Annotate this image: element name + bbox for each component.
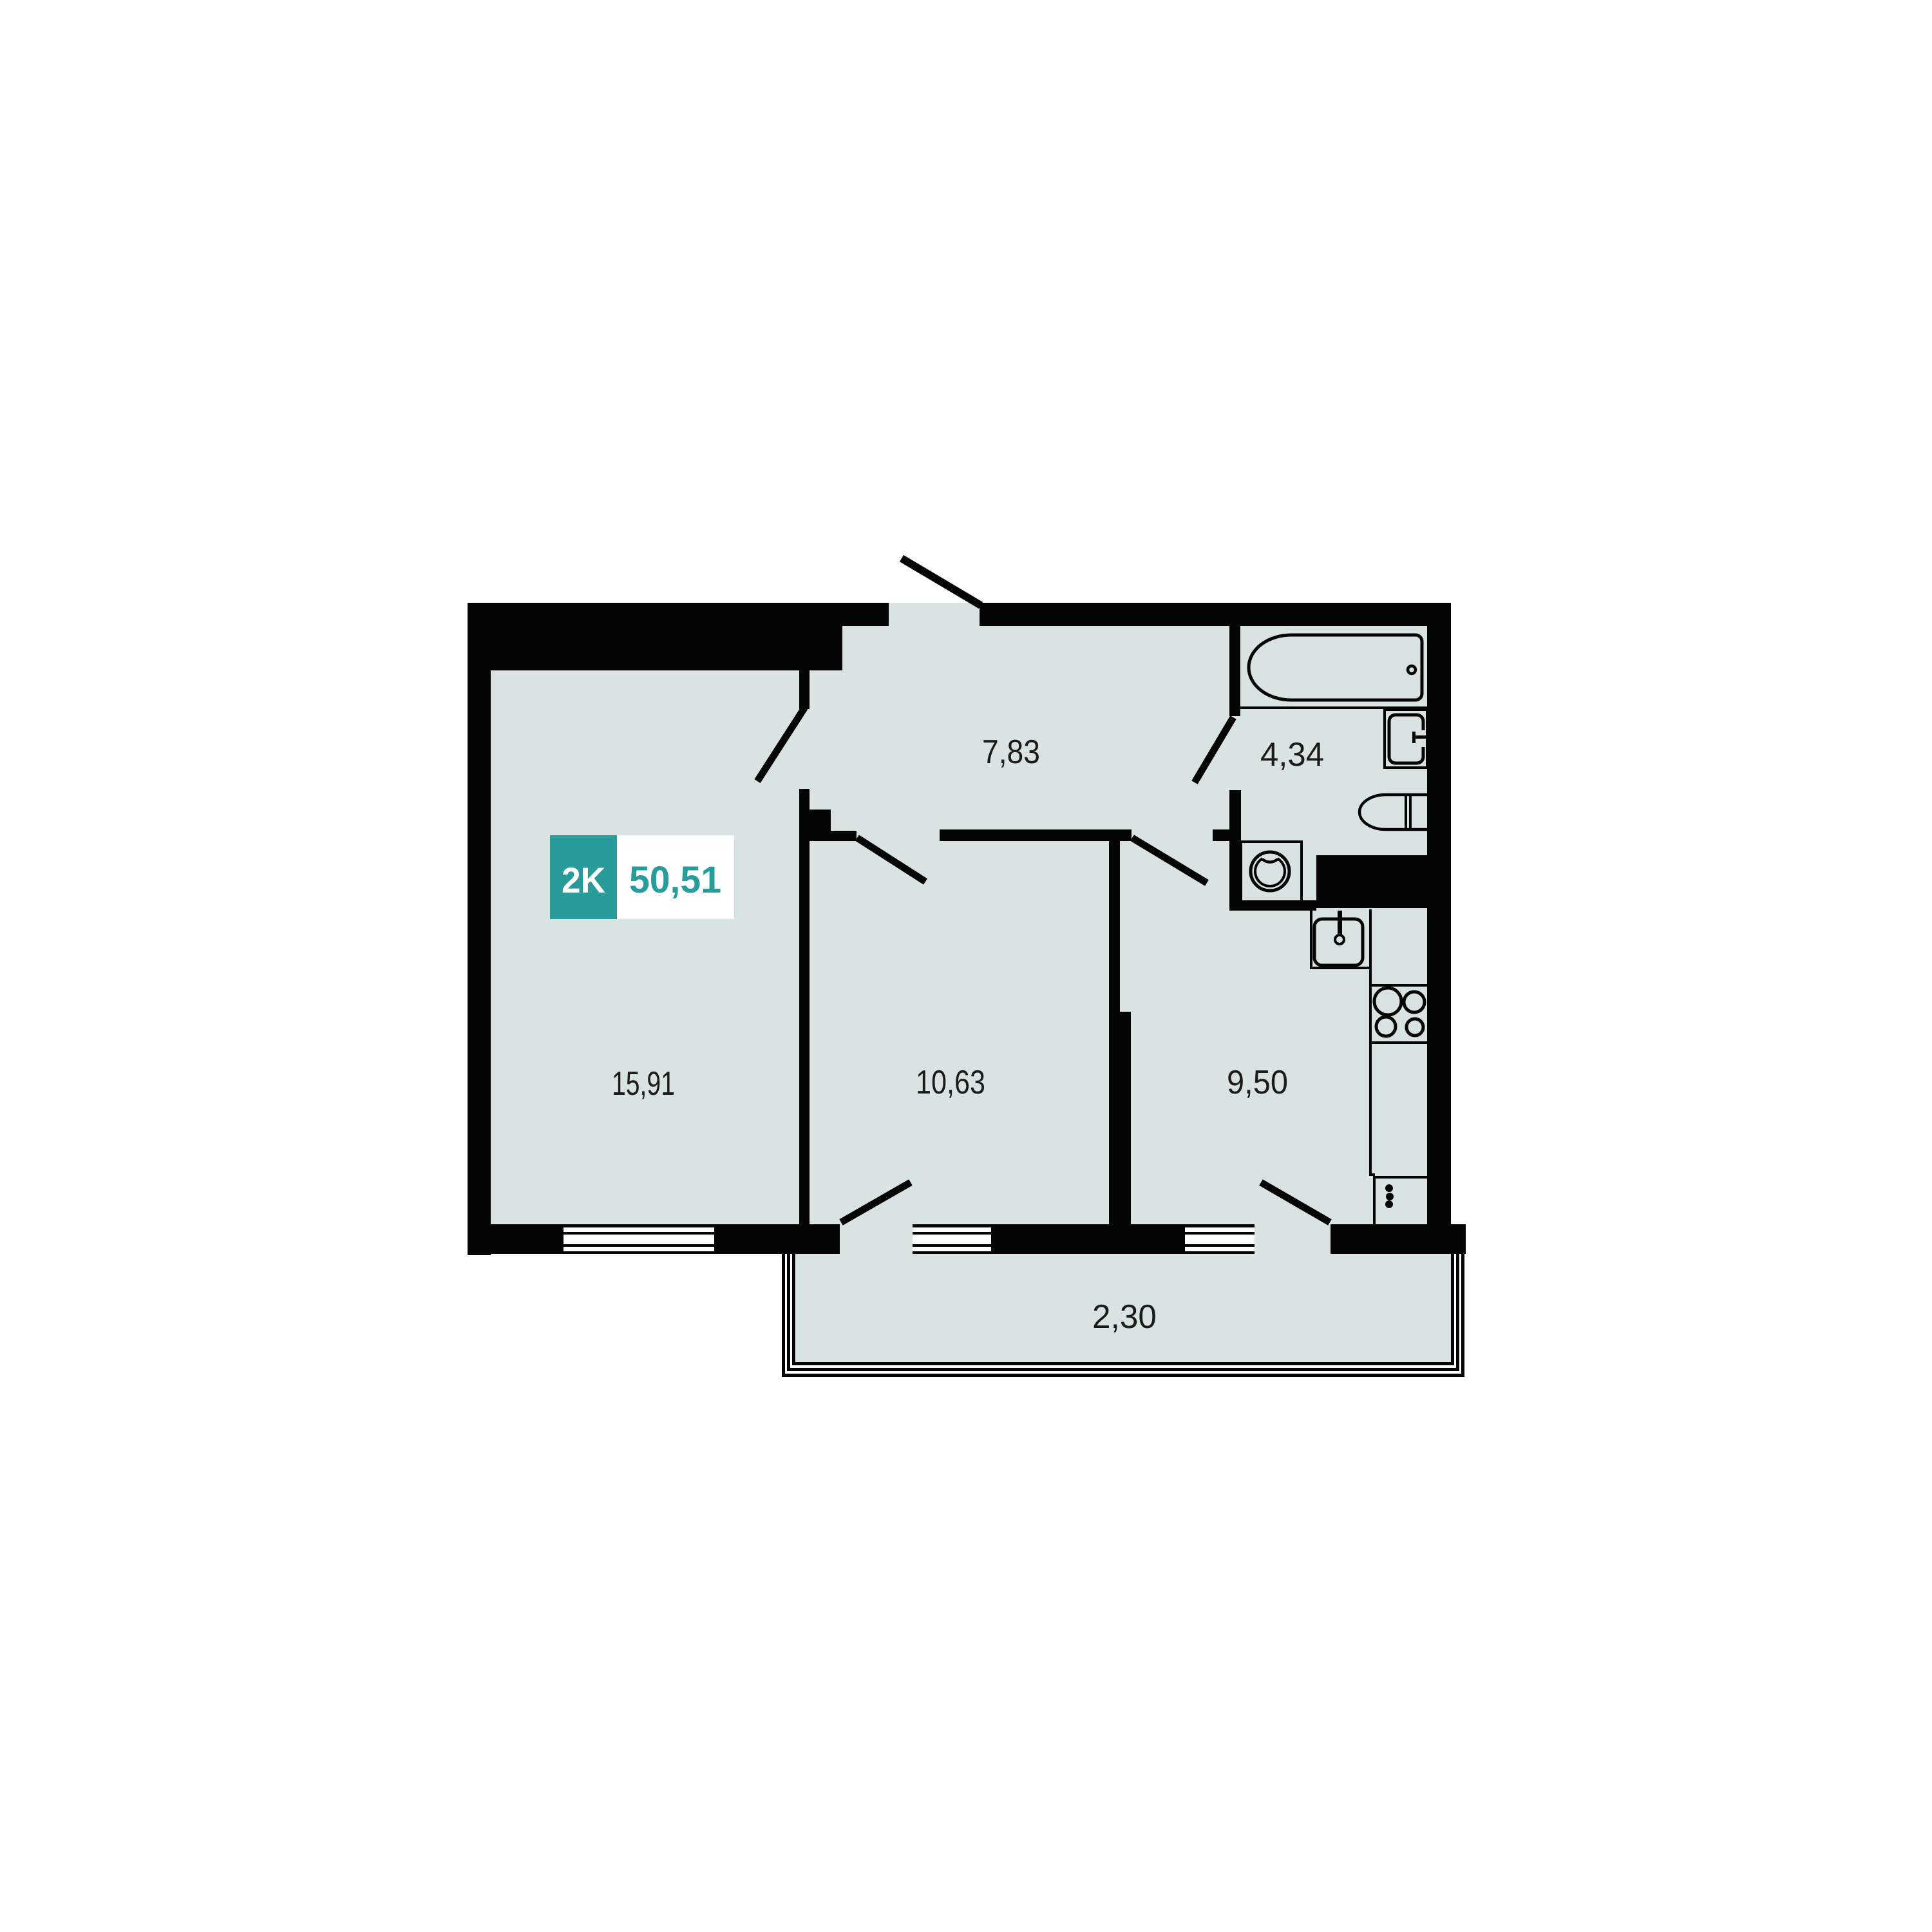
svg-text:2,30: 2,30 (1092, 1298, 1157, 1336)
svg-text:2K: 2K (562, 860, 605, 900)
svg-text:7,83: 7,83 (982, 734, 1040, 771)
svg-text:4,34: 4,34 (1260, 736, 1324, 773)
svg-text:9,50: 9,50 (1227, 1064, 1288, 1101)
svg-text:15,91: 15,91 (612, 1065, 675, 1103)
svg-text:50,51: 50,51 (629, 859, 721, 901)
svg-text:10,63: 10,63 (916, 1064, 985, 1101)
